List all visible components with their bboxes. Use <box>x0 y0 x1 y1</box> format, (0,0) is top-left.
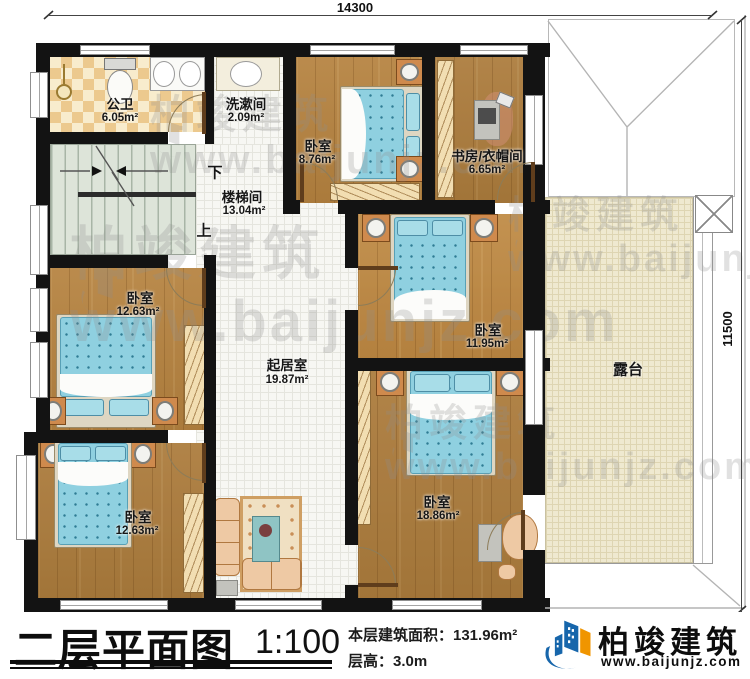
company-website: www.baijunjz.com <box>601 654 742 669</box>
terrace-column <box>695 195 733 233</box>
floor-plan: 柏竣建筑www.baijunjz.com 柏竣建筑www.baijunjz.co… <box>0 0 750 679</box>
title-block: 二层平面图 1:100 本层建筑面积：131.96m² 层高：3.0m 柏竣建筑… <box>0 612 750 679</box>
roof-top-right <box>548 19 735 197</box>
computer-monitor-icon <box>478 108 496 124</box>
nightstand <box>130 440 156 468</box>
wall <box>345 214 358 268</box>
nightstand <box>152 397 178 425</box>
nightstand <box>396 59 423 85</box>
room-label-bedroom-top: 卧室 <box>305 135 332 155</box>
wall <box>523 550 545 612</box>
nightstand <box>470 214 498 242</box>
window <box>30 342 48 398</box>
stair-arrow-right <box>92 166 102 176</box>
room-area-bedroom-left1: 12.63m² <box>117 306 160 318</box>
nightstand <box>362 214 390 242</box>
window <box>60 600 168 610</box>
window <box>392 600 482 610</box>
toilet-tank <box>104 58 136 70</box>
door-bedroom-left1 <box>202 268 206 308</box>
title-underline <box>10 660 332 664</box>
dimension-line-right <box>741 20 742 612</box>
dimension-right: 11500 <box>720 299 734 359</box>
window <box>525 330 543 425</box>
wall <box>345 585 358 598</box>
door-bedroom-mid <box>358 266 398 270</box>
window <box>525 95 543 165</box>
stairwell-floor <box>50 144 196 255</box>
room-area-bedroom-top: 8.76m² <box>299 154 335 166</box>
washroom-sink <box>230 61 262 87</box>
window <box>235 600 322 610</box>
window <box>30 205 48 275</box>
terrace-floor <box>545 197 693 563</box>
stair-down-label: 下 <box>207 162 222 183</box>
pillow <box>397 220 428 236</box>
wall <box>338 200 495 214</box>
wardrobe <box>184 325 205 425</box>
window <box>460 45 528 55</box>
wardrobe <box>330 183 420 201</box>
door-study <box>531 162 535 202</box>
bed-sheet <box>60 374 152 397</box>
room-area-study: 6.65m² <box>469 164 505 176</box>
wall <box>204 430 216 443</box>
pillow <box>454 374 490 392</box>
door-bedroom-top <box>300 162 304 202</box>
wall <box>36 132 168 144</box>
shower-hose <box>63 64 65 84</box>
room-label-bedroom-left1: 卧室 <box>127 287 154 307</box>
room-area-stairwell: 13.04m² <box>223 205 266 217</box>
shower-head-icon <box>56 84 72 100</box>
door-bedroom-left2 <box>202 443 206 483</box>
wall <box>345 358 550 371</box>
room-area-bedroom-right: 18.86m² <box>417 510 460 522</box>
room-label-living: 起居室 <box>267 354 308 374</box>
wall <box>345 310 358 545</box>
wardrobe <box>437 60 454 198</box>
wardrobe <box>183 493 204 593</box>
room-label-washroom: 洗漱间 <box>226 93 267 113</box>
pillow <box>95 446 126 461</box>
door-terrace <box>521 510 525 550</box>
flower-decor <box>259 524 272 537</box>
wall <box>422 43 435 214</box>
stair-arrow-left <box>116 166 126 176</box>
room-label-bedroom-left2: 卧室 <box>125 506 152 526</box>
pillow <box>406 93 420 131</box>
wall <box>36 430 168 443</box>
room-label-bedroom-mid: 卧室 <box>475 319 502 339</box>
room-label-terrace: 露台 <box>613 359 643 380</box>
company-logo-icon <box>538 614 598 676</box>
room-area-bathroom: 6.05m² <box>102 112 138 124</box>
stair-up-label: 上 <box>196 220 211 241</box>
bed-sheet <box>394 290 466 319</box>
wall <box>283 43 296 214</box>
door-bathroom <box>202 92 206 134</box>
pillow <box>432 220 463 236</box>
coffee-table <box>252 516 280 562</box>
sofa <box>214 498 240 576</box>
stair-rail <box>78 192 196 197</box>
nightstand <box>396 156 423 182</box>
pillow <box>64 399 104 416</box>
title-underline-thin <box>10 667 332 669</box>
stool <box>498 564 516 580</box>
floor-height-label: 层高：3.0m <box>348 650 427 671</box>
bed-sheet <box>58 462 128 486</box>
pillow <box>414 374 450 392</box>
room-label-bedroom-right: 卧室 <box>424 491 451 511</box>
floor-area-label: 本层建筑面积：131.96m² <box>348 624 517 645</box>
nightstand <box>376 368 404 396</box>
room-area-living: 19.87m² <box>266 374 309 386</box>
room-area-washroom: 2.09m² <box>228 112 264 124</box>
sofa <box>242 558 302 590</box>
pillow <box>60 446 91 461</box>
dimension-top: 14300 <box>320 0 390 14</box>
bed-sheet <box>410 394 492 420</box>
window <box>30 72 48 118</box>
room-label-study: 书房/衣帽间 <box>451 145 522 165</box>
room-area-bedroom-mid: 11.95m² <box>466 338 508 350</box>
bath-sink-bowl <box>153 61 175 87</box>
nightstand <box>496 368 524 396</box>
window <box>80 45 150 55</box>
window <box>310 45 395 55</box>
side-table <box>216 580 238 596</box>
wall <box>206 132 214 144</box>
page-title: 二层平面图 <box>14 616 234 678</box>
wall <box>283 200 300 214</box>
window <box>30 288 48 332</box>
pillow <box>109 399 149 416</box>
bath-sink-bowl <box>179 61 201 87</box>
dimension-line-top <box>48 15 712 16</box>
room-area-bedroom-left2: 12.63m² <box>116 525 159 537</box>
roof-bottom-right <box>545 563 713 612</box>
room-label-bathroom: 公卫 <box>107 93 134 113</box>
terrace-railing <box>693 197 713 563</box>
wall <box>535 200 550 214</box>
wall <box>36 255 168 268</box>
scale-label: 1:100 <box>255 623 340 662</box>
room-label-stairwell: 楼梯间 <box>222 186 263 206</box>
door-bedroom-right <box>358 583 398 587</box>
wall <box>205 57 214 144</box>
window <box>16 455 36 540</box>
